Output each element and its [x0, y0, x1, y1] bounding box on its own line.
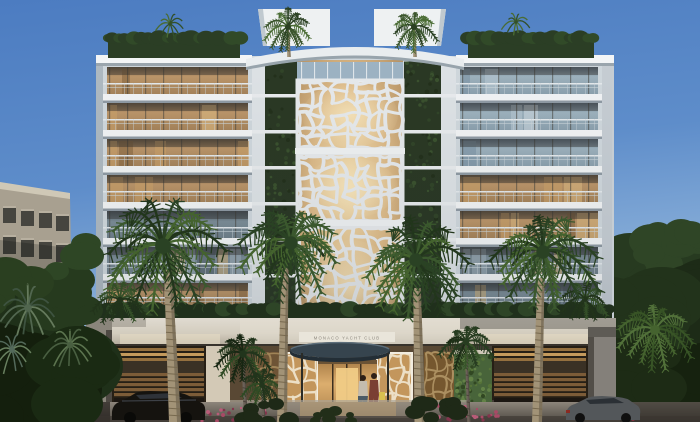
svg-text:MONACO YACHT CLUB: MONACO YACHT CLUB	[314, 336, 380, 341]
